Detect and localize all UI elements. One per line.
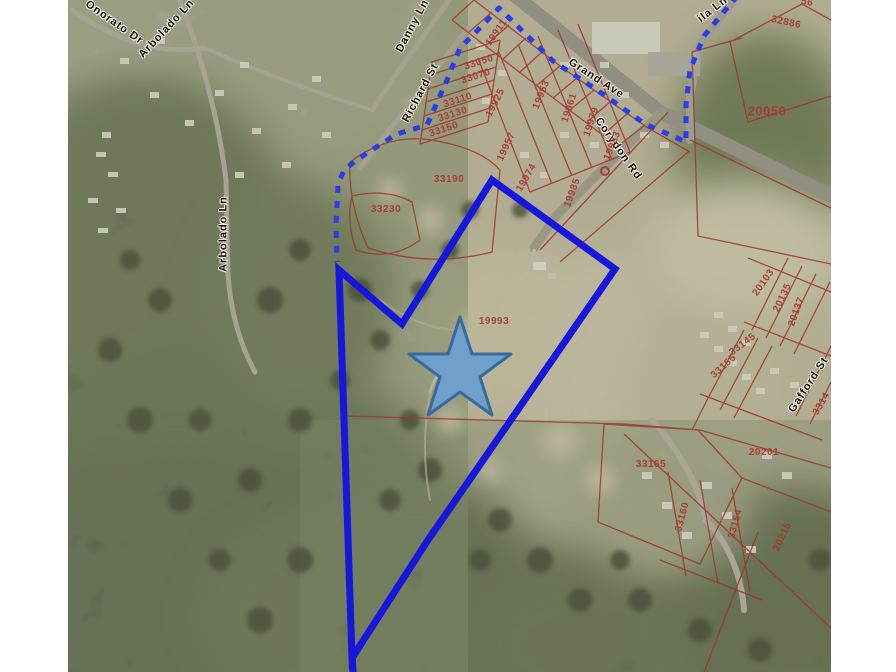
parcel-label-33190: 33190 [434,175,464,185]
parcel-label-20215: 20215 [772,521,794,553]
parcel-label-56: 56 [800,0,814,9]
parcel-label-20137: 20137 [787,296,807,328]
map-canvas: Onorato DrArbolado LnArbolado LnDanny Ln… [68,0,831,672]
parcel-label-19957: 19957 [496,131,518,163]
parcel-label-19911: 19911 [484,18,509,48]
parcel-label-33165: 33165 [636,460,666,470]
street-label-arbolado-ln: Arbolado Ln [219,196,230,272]
parcel-label-19993: 19993 [479,317,509,327]
parcel-label-19961: 19961 [561,92,580,124]
parcel-label-19953: 19953 [532,79,553,111]
street-label-onorato-dr: Onorato Dr [83,0,145,47]
parcel-label-19985: 19985 [563,177,583,209]
parcel-label-33155: 33155 [709,353,738,381]
street-label-ila-ln: ila Ln [696,0,730,25]
parcel-label-20103: 20103 [751,268,777,299]
parcel-label-32886: 32886 [770,15,802,31]
parcel-label-33150: 33150 [428,121,460,140]
street-label-arbolado-ln: Arbolado Ln [137,0,197,60]
street-label-corydon-rd: Corydon Rd [593,116,644,182]
parcel-label-20201: 20201 [749,448,779,458]
parcel-label-19925: 19925 [485,87,508,119]
parcel-label-19974: 19974 [515,162,539,193]
map-labels-layer: Onorato DrArbolado LnArbolado LnDanny Ln… [68,0,831,672]
parcel-label-33160: 33160 [674,501,692,533]
street-label-richard-st: Richard St [401,62,441,125]
parcel-label-20050: 20050 [748,105,787,118]
aerial-parcel-map-screenshot: Onorato DrArbolado LnArbolado LnDanny Ln… [0,0,896,672]
parcel-label-33230: 33230 [371,205,401,215]
parcel-label-3314: 3314 [812,391,831,417]
street-label-danny-ln: Danny Ln [394,0,431,54]
parcel-label-33154: 33154 [727,508,745,540]
